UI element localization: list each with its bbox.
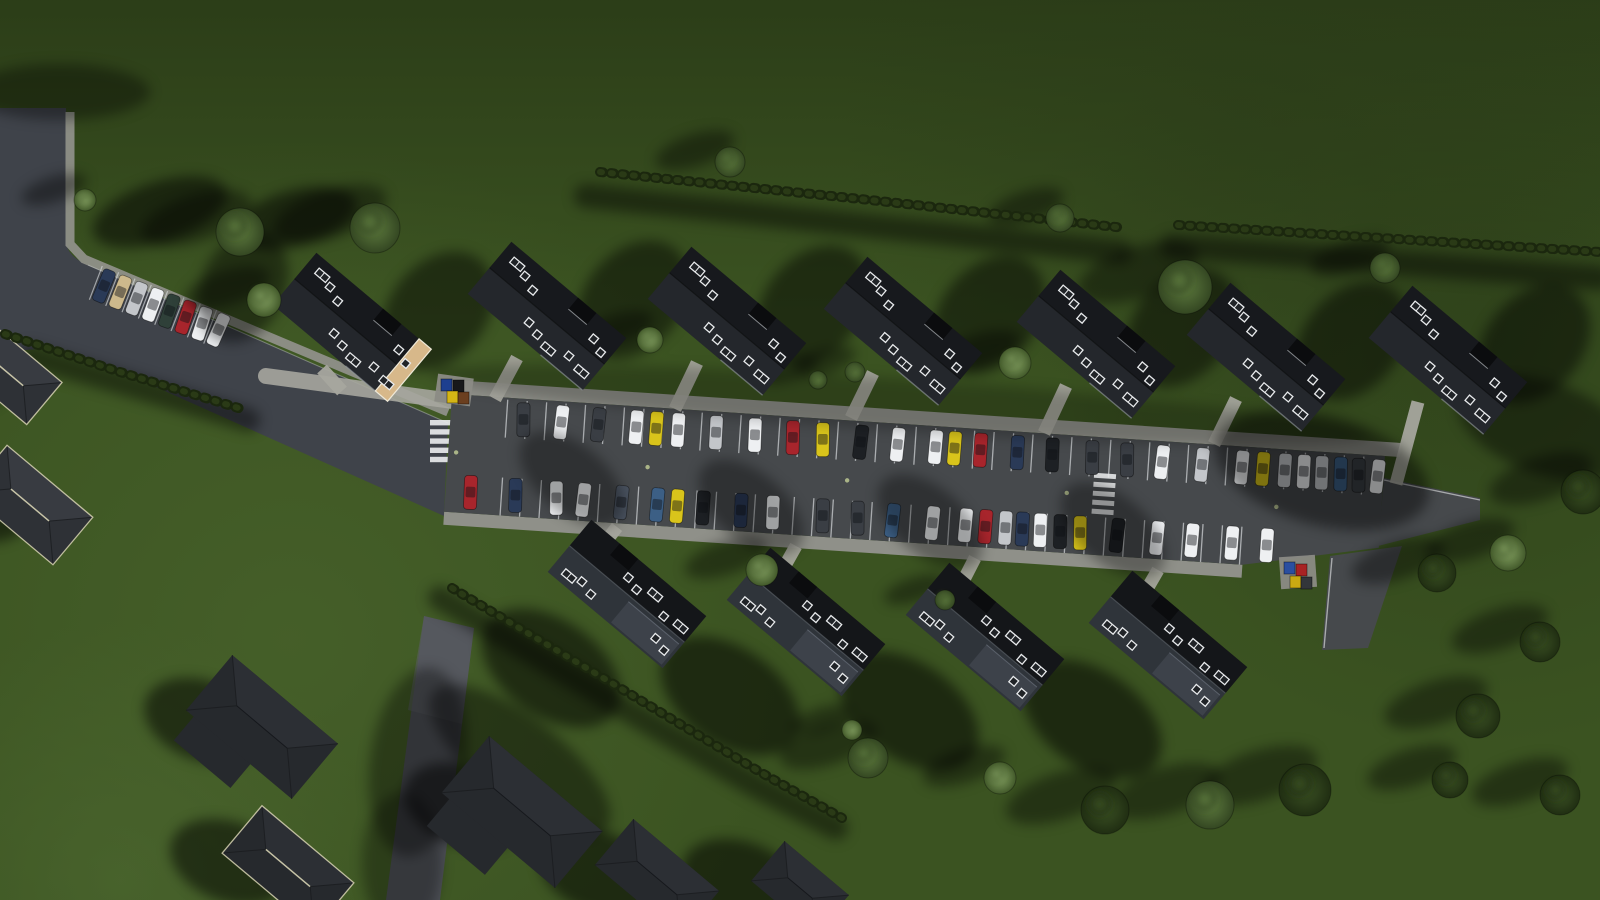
tree-canopy-highlight <box>848 365 858 375</box>
car <box>1015 512 1030 547</box>
tree <box>74 189 96 211</box>
tree-canopy-highlight <box>1567 476 1589 498</box>
car-glass <box>853 512 863 523</box>
tree <box>350 203 400 253</box>
car <box>927 430 943 465</box>
car-glass <box>651 423 662 434</box>
tree <box>746 554 778 586</box>
tree <box>216 208 264 256</box>
tree-canopy-highlight <box>845 723 855 733</box>
tree-canopy-highlight <box>1374 257 1389 272</box>
aerial-site-render <box>0 0 1600 900</box>
car-glass <box>1087 452 1097 463</box>
site-plan-canvas <box>0 0 1600 900</box>
waste-bin <box>1290 576 1301 588</box>
tree <box>1418 554 1456 592</box>
car <box>709 415 724 450</box>
car <box>816 423 829 457</box>
tree <box>1370 253 1400 283</box>
car-glass <box>1187 534 1198 546</box>
tree-canopy-highlight <box>1003 351 1019 367</box>
car-glass <box>1157 456 1168 468</box>
waste-bin <box>458 392 469 404</box>
tree <box>1520 622 1560 662</box>
car-glass <box>930 441 941 453</box>
car <box>1033 513 1047 547</box>
tree <box>935 590 955 610</box>
car <box>1224 526 1240 561</box>
waste-bin <box>1301 577 1312 589</box>
tree <box>1081 786 1129 834</box>
tree-canopy-highlight <box>1166 267 1193 294</box>
tree-canopy-highlight <box>223 214 247 238</box>
car-glass <box>892 438 903 450</box>
car <box>786 421 800 455</box>
tree-canopy-highlight <box>719 151 734 166</box>
tree <box>984 762 1016 794</box>
tree <box>247 283 281 317</box>
tree <box>1279 764 1331 816</box>
tree-canopy-highlight <box>77 192 88 203</box>
tree-canopy-highlight <box>1050 208 1064 222</box>
car-glass <box>510 490 520 501</box>
car-glass <box>1000 522 1010 533</box>
car-glass <box>673 424 683 435</box>
tree <box>1186 781 1234 829</box>
car <box>628 410 644 445</box>
tree <box>848 738 888 778</box>
car-glass <box>1197 459 1208 471</box>
tree-canopy-highlight <box>1437 767 1455 785</box>
tree <box>1540 775 1580 815</box>
car-glass <box>1047 449 1057 460</box>
car-glass <box>1017 523 1027 534</box>
tree-canopy-highlight <box>1193 787 1217 811</box>
car-glass <box>1227 537 1238 548</box>
car-glass <box>975 444 985 455</box>
car-glass <box>750 429 760 440</box>
car <box>973 433 988 468</box>
car <box>669 489 685 524</box>
tree-canopy-highlight <box>1286 771 1312 797</box>
car-glass <box>1122 454 1132 465</box>
tree <box>809 371 827 389</box>
car <box>748 418 762 452</box>
tree <box>637 327 663 353</box>
tree-canopy-highlight <box>1423 559 1442 578</box>
tree <box>1046 204 1074 232</box>
tree-canopy-highlight <box>641 330 654 343</box>
car-glass <box>1262 539 1272 550</box>
car-glass <box>631 421 642 433</box>
car-glass <box>672 500 683 511</box>
tree-canopy-highlight <box>750 558 766 574</box>
tree-canopy-highlight <box>357 209 382 234</box>
tree <box>1561 470 1600 514</box>
waste-bin <box>1284 562 1295 574</box>
car <box>998 511 1013 546</box>
tree <box>1490 535 1526 571</box>
tree <box>715 147 745 177</box>
waste-bin <box>447 391 458 403</box>
car-glass <box>855 436 866 448</box>
tree <box>1456 694 1500 738</box>
car <box>1184 523 1200 558</box>
car-glass <box>593 419 604 431</box>
tree <box>1158 260 1212 314</box>
car <box>816 499 830 533</box>
car-glass <box>556 416 567 428</box>
tree-canopy-highlight <box>1462 700 1484 722</box>
car <box>851 501 864 535</box>
car-glass <box>818 510 828 521</box>
waste-bin <box>453 380 464 392</box>
waste-bin <box>441 379 452 391</box>
tree-canopy-highlight <box>1495 540 1513 558</box>
tree <box>999 347 1031 379</box>
car <box>463 475 477 509</box>
car-glass <box>818 434 828 445</box>
car <box>1010 435 1025 470</box>
car <box>1085 440 1099 474</box>
car-glass <box>980 521 991 532</box>
tree-canopy-highlight <box>1526 627 1546 647</box>
tree-canopy-highlight <box>252 287 269 304</box>
tree-canopy-highlight <box>854 743 874 763</box>
car <box>1259 528 1274 563</box>
car-glass <box>711 427 721 438</box>
car <box>1045 438 1059 472</box>
car <box>670 413 685 448</box>
tree <box>1432 762 1468 798</box>
tree <box>842 720 862 740</box>
car <box>509 478 523 512</box>
tree-canopy-highlight <box>1546 780 1566 800</box>
tree-canopy-highlight <box>812 373 821 382</box>
waste-bin <box>1296 564 1307 576</box>
car-glass <box>949 442 960 453</box>
tree-canopy-highlight <box>938 593 948 603</box>
car-glass <box>1012 447 1022 458</box>
car <box>947 431 963 466</box>
car-glass <box>788 432 798 443</box>
car <box>649 487 665 522</box>
car-glass <box>518 414 528 425</box>
car-glass <box>465 487 475 498</box>
tree <box>845 362 865 382</box>
car-glass <box>1055 526 1065 537</box>
car <box>1120 443 1133 477</box>
car <box>648 411 664 446</box>
car <box>517 403 530 437</box>
tree-canopy-highlight <box>1088 792 1112 816</box>
car-glass <box>1035 524 1045 535</box>
car-glass <box>652 499 663 511</box>
tree-canopy-highlight <box>988 766 1004 782</box>
